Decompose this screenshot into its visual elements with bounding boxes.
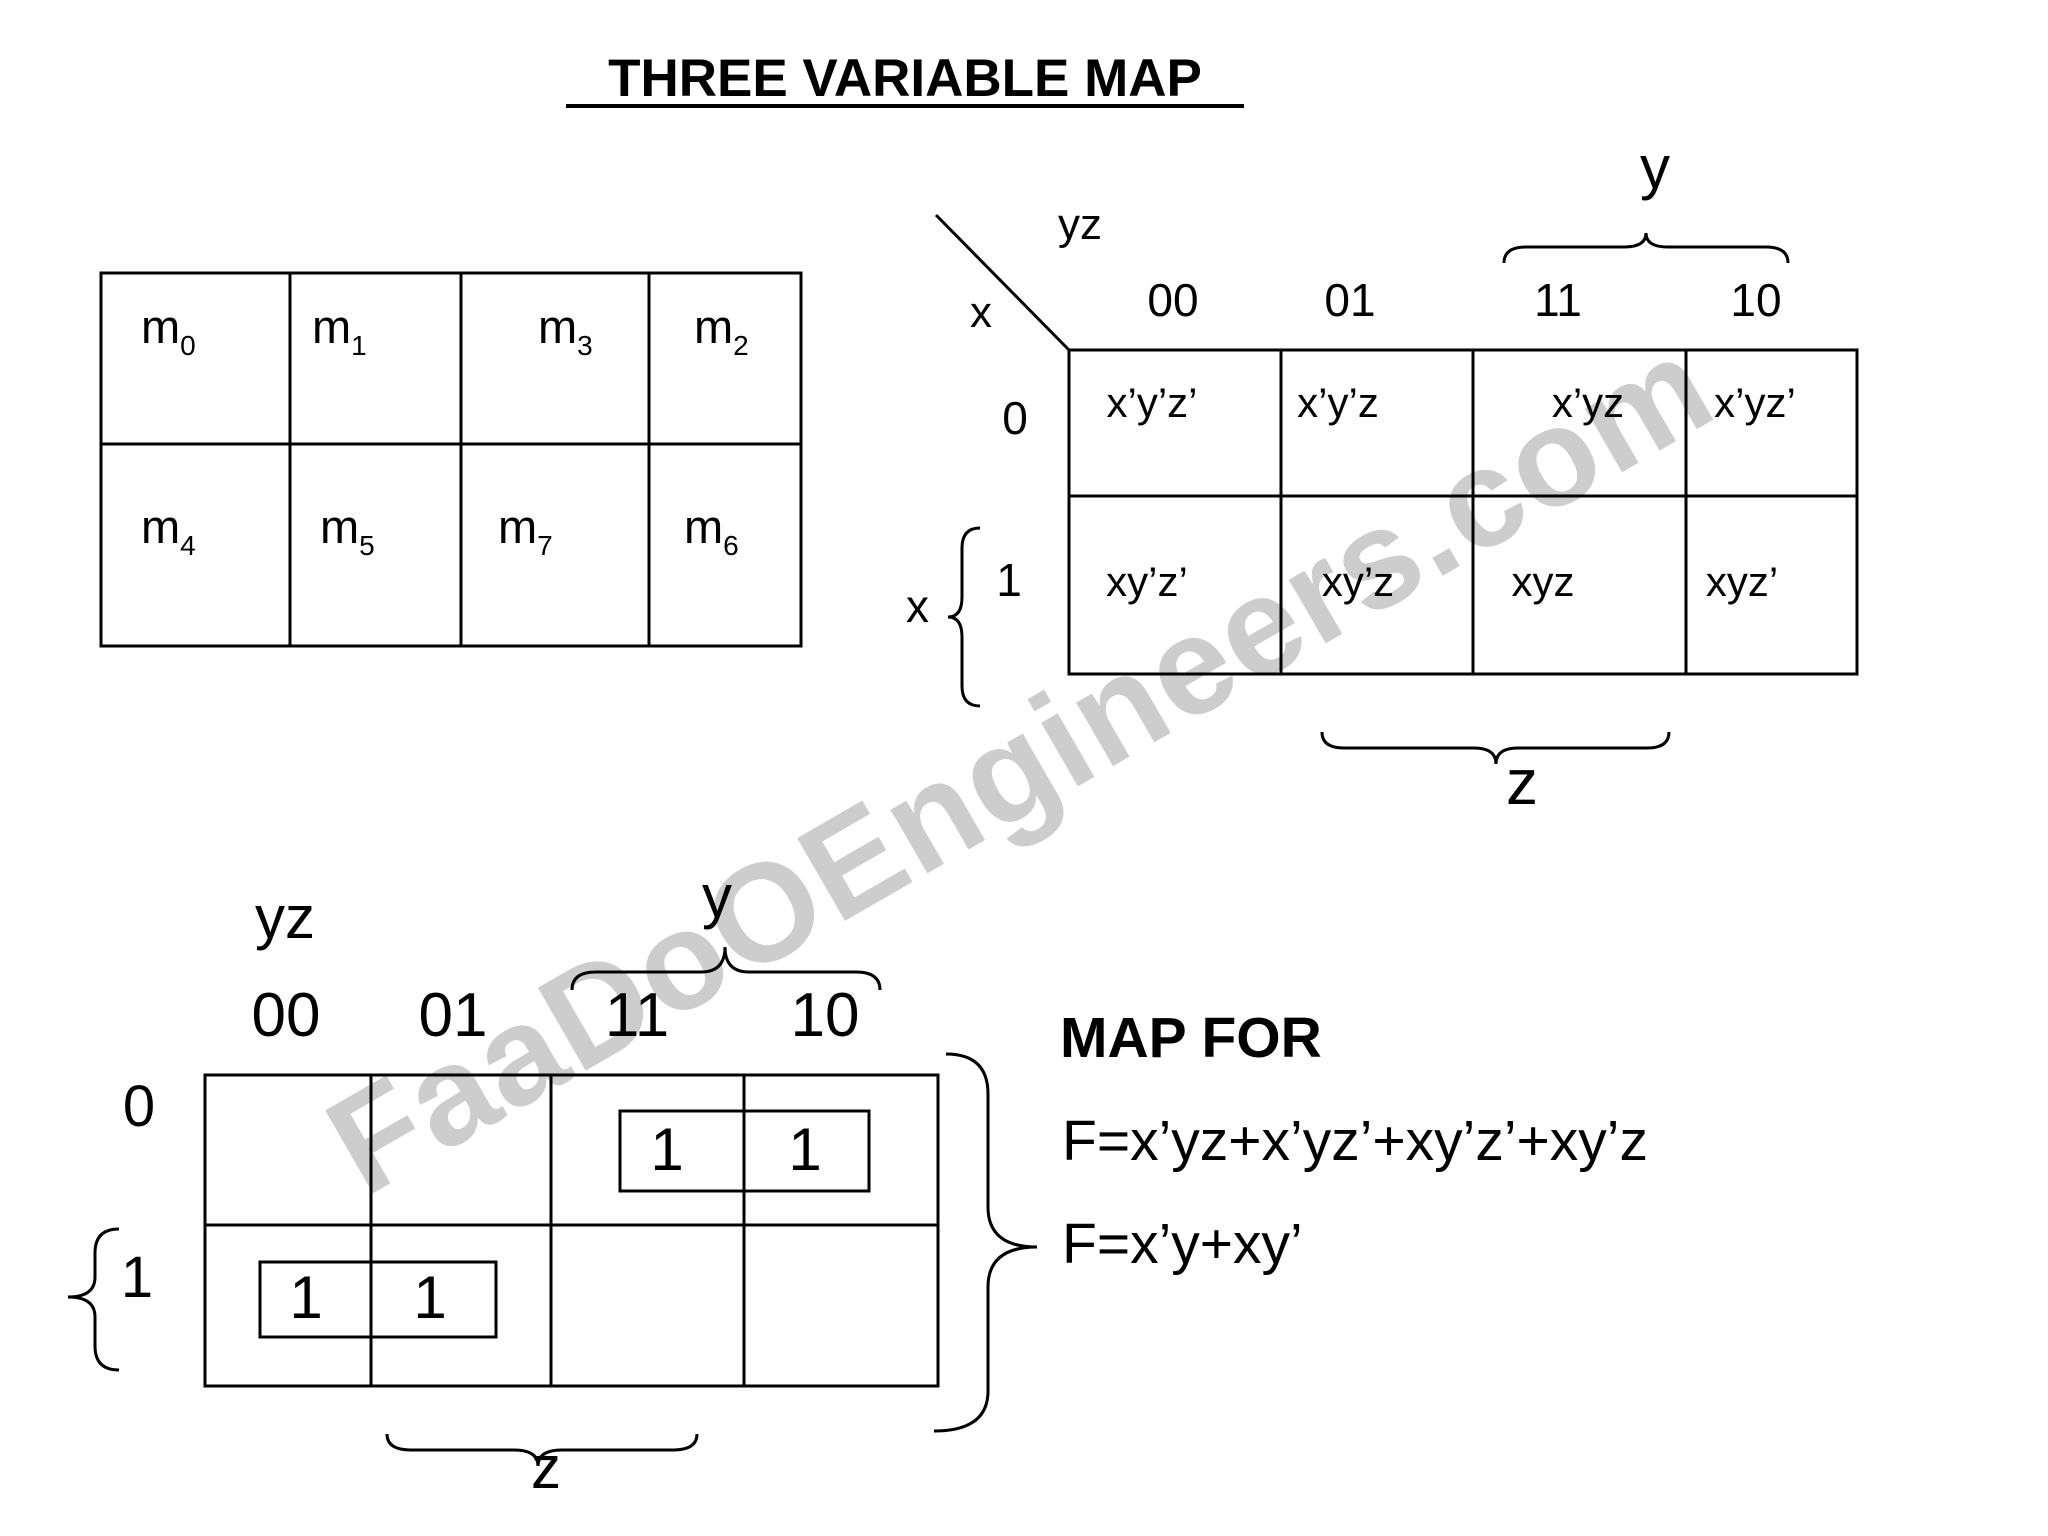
svg-text:1: 1 (996, 554, 1022, 606)
svg-text:11: 11 (605, 981, 669, 1050)
svg-text:x’y’z: x’y’z (1297, 379, 1379, 426)
svg-text:1: 1 (788, 1116, 821, 1183)
svg-text:xyz: xyz (1512, 558, 1575, 605)
svg-text:yz: yz (1058, 200, 1102, 249)
svg-text:0: 0 (123, 1074, 155, 1139)
svg-text:y: y (702, 863, 732, 930)
svg-text:01: 01 (419, 981, 488, 1050)
svg-text:1: 1 (413, 1264, 446, 1331)
svg-text:xy’z: xy’z (1322, 558, 1394, 605)
svg-text:x: x (906, 580, 929, 632)
svg-text:1: 1 (121, 1245, 153, 1310)
svg-text:THREE VARIABLE MAP: THREE VARIABLE MAP (608, 49, 1202, 108)
svg-text:01: 01 (1324, 274, 1375, 326)
svg-text:10: 10 (791, 981, 860, 1050)
svg-text:00: 00 (1147, 274, 1198, 326)
svg-text:xy’z’: xy’z’ (1106, 558, 1188, 605)
svg-text:z: z (1506, 746, 1538, 818)
svg-text:F=x’y+xy’: F=x’y+xy’ (1062, 1212, 1303, 1276)
svg-text:yz: yz (255, 884, 315, 951)
svg-text:x’y’z’: x’y’z’ (1107, 379, 1198, 426)
svg-text:0: 0 (1002, 392, 1028, 444)
svg-text:1: 1 (289, 1264, 322, 1331)
svg-text:x’yz’: x’yz’ (1714, 379, 1796, 426)
svg-text:11: 11 (1534, 274, 1582, 326)
svg-text:F=x’yz+x’yz’+xy’z’+xy’z: F=x’yz+x’yz’+xy’z’+xy’z (1062, 1109, 1648, 1173)
svg-text:x’yz: x’yz (1552, 379, 1624, 426)
svg-text:MAP FOR: MAP FOR (1060, 1006, 1322, 1070)
svg-text:00: 00 (252, 981, 321, 1050)
svg-text:z: z (531, 1434, 561, 1501)
svg-text:10: 10 (1730, 274, 1781, 326)
svg-text:1: 1 (650, 1116, 683, 1183)
svg-text:y: y (1640, 134, 1670, 201)
svg-text:xyz’: xyz’ (1706, 558, 1778, 605)
svg-text:x: x (970, 288, 992, 337)
